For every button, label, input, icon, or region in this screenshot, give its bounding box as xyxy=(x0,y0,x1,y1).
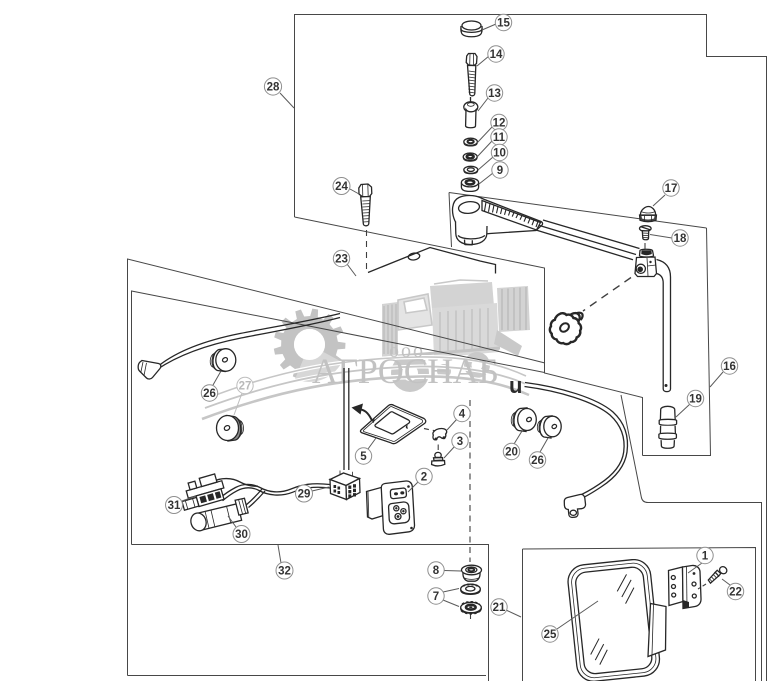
svg-text:АГРОСНАБ: АГРОСНАБ xyxy=(312,351,498,391)
svg-text:11: 11 xyxy=(493,132,506,144)
svg-text:18: 18 xyxy=(674,233,687,245)
svg-text:7: 7 xyxy=(433,591,439,603)
svg-text:9: 9 xyxy=(497,165,503,177)
svg-text:5: 5 xyxy=(360,451,367,463)
svg-text:4: 4 xyxy=(459,409,466,421)
svg-text:26: 26 xyxy=(531,455,544,467)
svg-text:19: 19 xyxy=(689,394,702,406)
svg-text:27: 27 xyxy=(239,381,252,393)
svg-text:12: 12 xyxy=(493,118,506,130)
svg-text:31: 31 xyxy=(168,500,181,512)
svg-text:20: 20 xyxy=(505,447,518,459)
svg-text:14: 14 xyxy=(490,49,503,61)
svg-text:30: 30 xyxy=(235,529,248,541)
svg-text:13: 13 xyxy=(488,88,501,100)
svg-text:15: 15 xyxy=(497,18,510,30)
svg-text:21: 21 xyxy=(493,602,506,614)
svg-text:25: 25 xyxy=(544,629,557,641)
svg-text:u: u xyxy=(509,373,522,398)
svg-text:17: 17 xyxy=(665,183,678,195)
svg-text:26: 26 xyxy=(203,388,216,400)
svg-text:32: 32 xyxy=(278,566,291,578)
svg-text:22: 22 xyxy=(729,587,742,599)
svg-text:2: 2 xyxy=(421,472,427,484)
svg-text:16: 16 xyxy=(723,361,736,373)
svg-text:28: 28 xyxy=(267,82,280,94)
svg-text:8: 8 xyxy=(433,565,440,577)
svg-text:23: 23 xyxy=(335,254,348,266)
svg-text:1: 1 xyxy=(702,551,709,563)
svg-text:3: 3 xyxy=(457,436,463,448)
svg-text:29: 29 xyxy=(298,489,311,501)
svg-text:10: 10 xyxy=(493,148,506,160)
svg-text:24: 24 xyxy=(335,181,348,193)
